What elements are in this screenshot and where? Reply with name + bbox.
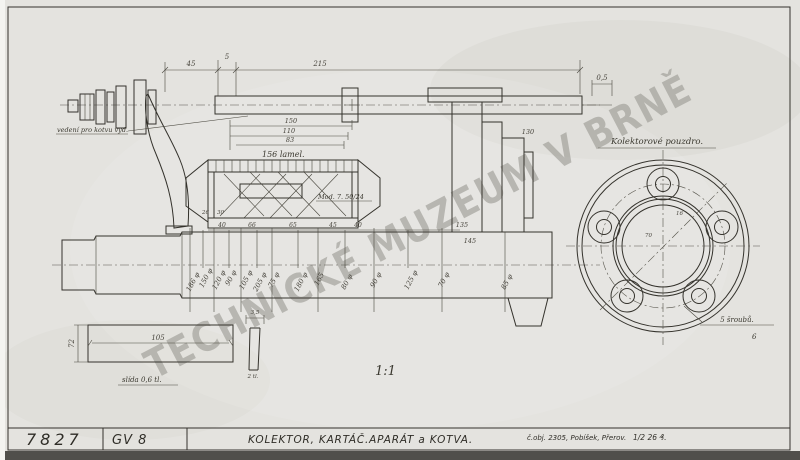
dim-label: 150	[285, 117, 297, 125]
mica-note-text: slída 0,6 tl.	[122, 376, 162, 384]
dim-label: 40	[353, 222, 362, 229]
dim-label: 215	[312, 60, 327, 68]
screws-note-text: 5 šroubů.	[720, 315, 754, 324]
dim-label: 135	[456, 221, 468, 229]
housing-label: Kolektorové pouzdro.	[598, 136, 716, 148]
dim-label: 72	[68, 339, 76, 348]
order-note: č.obj. 2305, Pobíšek, Přerov.	[527, 434, 626, 442]
dim-label: 70	[645, 233, 652, 239]
lamel-count-note: 156 lamel.	[262, 150, 305, 159]
dim-label: 40	[217, 222, 226, 229]
dim-label: 45	[328, 222, 337, 229]
scan-left-edge	[0, 0, 5, 460]
dim-label: 2 tl.	[247, 374, 259, 380]
type-code: GV 8	[112, 433, 147, 448]
housing-label-text: Kolektorové pouzdro.	[610, 136, 703, 147]
dim-label: 110	[283, 127, 295, 135]
date-note: 1/2 26 ₰.	[633, 433, 667, 442]
left-note-text: vedení pro kotvu vyd.	[57, 126, 128, 134]
scan-bottom-edge	[0, 451, 800, 460]
dim-label: 5	[225, 53, 230, 61]
dim-label: 105	[151, 334, 165, 342]
dim-label: 16	[676, 211, 683, 217]
drawing-sheet: TECHNICKÉ MUZEUM V BRNĚ 45 5 215 0,5	[0, 0, 800, 460]
mod-note: Mod. 7. 50/24	[317, 193, 364, 201]
scale-label: 1:1	[375, 364, 396, 379]
dim-label: 3,5	[251, 310, 260, 316]
dim-label: 83	[286, 136, 294, 144]
dim-label: 26	[201, 210, 209, 216]
dim-label: 30	[217, 210, 224, 216]
dim-label: 65	[289, 222, 297, 229]
dim-label: 145	[464, 237, 476, 245]
dim-label: 45	[186, 60, 196, 68]
dim-label: 0,5	[596, 74, 608, 82]
drawing-title: KOLEKTOR, KARTÁČ.APARÁT a KOTVA.	[248, 433, 473, 446]
drawing-number: 7827	[26, 430, 83, 449]
screws-pos-text: 6	[752, 333, 757, 341]
dim-label: 130	[522, 128, 534, 136]
dim-label: 66	[248, 222, 256, 229]
